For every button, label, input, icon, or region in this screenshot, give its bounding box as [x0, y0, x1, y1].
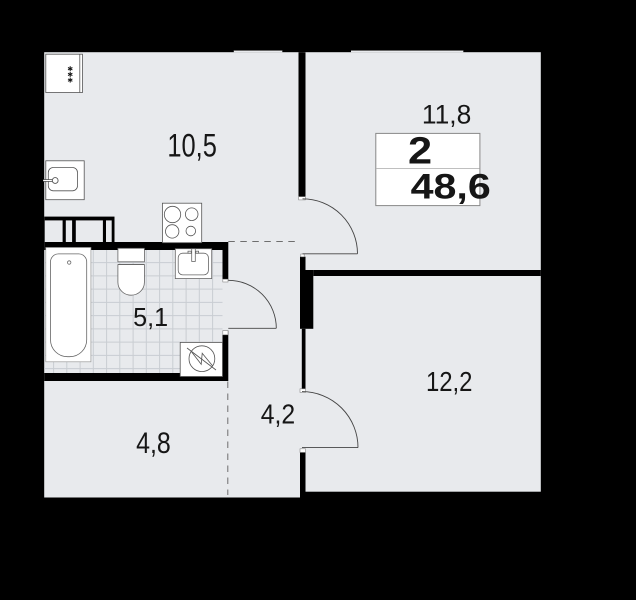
svg-text:48,6: 48,6: [411, 167, 491, 207]
svg-text:4,8: 4,8: [136, 426, 171, 460]
svg-text:2: 2: [408, 129, 432, 172]
svg-text:11,8: 11,8: [422, 99, 471, 129]
svg-text:10,5: 10,5: [167, 129, 216, 165]
svg-text:4,2: 4,2: [261, 398, 295, 430]
svg-text:12,2: 12,2: [426, 368, 472, 398]
svg-text:5,1: 5,1: [133, 304, 168, 333]
